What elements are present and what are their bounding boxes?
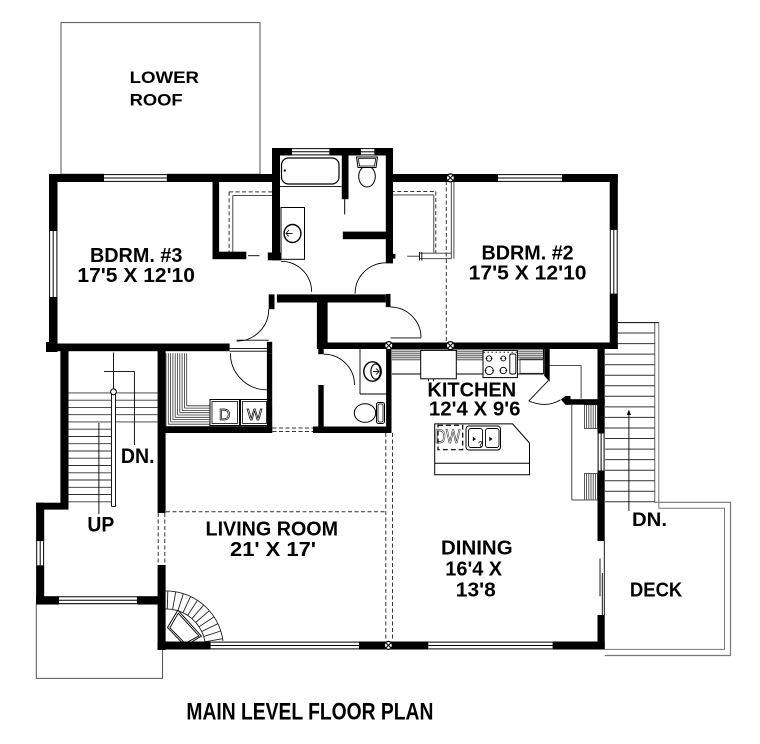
svg-text:17'5 X 12'10: 17'5 X 12'10 xyxy=(77,264,195,287)
svg-text:DN.: DN. xyxy=(121,445,155,468)
svg-text:12'4 X 9'6: 12'4 X 9'6 xyxy=(429,397,521,420)
svg-text:DINING: DINING xyxy=(441,536,513,559)
svg-text:MAIN LEVEL FLOOR PLAN: MAIN LEVEL FLOOR PLAN xyxy=(186,698,433,725)
svg-text:21' X 17': 21' X 17' xyxy=(230,539,316,561)
svg-text:17'5 X 12'10: 17'5 X 12'10 xyxy=(469,262,587,285)
svg-text:LIVING ROOM: LIVING ROOM xyxy=(206,519,339,541)
svg-text:DN.: DN. xyxy=(632,510,667,531)
svg-text:W: W xyxy=(247,407,263,424)
svg-text:DECK: DECK xyxy=(630,579,683,602)
svg-text:UP: UP xyxy=(87,513,114,536)
svg-text:13'8: 13'8 xyxy=(456,578,496,601)
svg-text:D: D xyxy=(219,407,231,424)
svg-text:DW: DW xyxy=(435,427,461,448)
svg-text:ROOF: ROOF xyxy=(130,91,183,110)
svg-text:16'4 X: 16'4 X xyxy=(445,557,502,580)
svg-text:LOWER: LOWER xyxy=(130,68,199,87)
